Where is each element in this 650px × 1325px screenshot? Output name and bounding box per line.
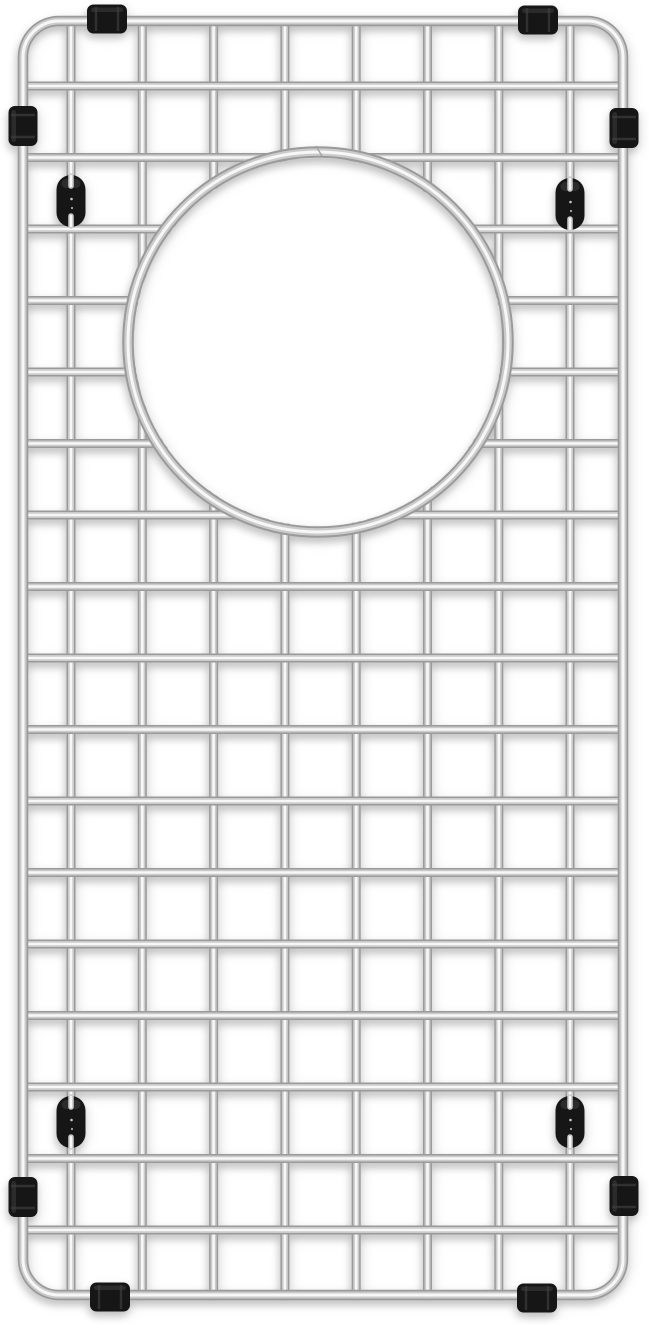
bumper-sheen: [12, 1181, 17, 1213]
foot-speck: [569, 201, 572, 204]
bumper-sheen: [613, 112, 618, 144]
frame-bumper: [9, 1177, 38, 1217]
bumper-sheen: [522, 9, 554, 14]
rubber-foot: [57, 1096, 86, 1148]
horizontal-wires: [23, 86, 623, 1230]
foot-speck: [71, 207, 73, 209]
frame-bumper: [9, 106, 38, 146]
frame-bumper: [518, 6, 558, 35]
foot-speck: [569, 1119, 572, 1122]
drain-ring: [128, 146, 508, 532]
foot-speck: [570, 1128, 572, 1130]
bumper-sheen: [521, 1287, 553, 1292]
frame-bumper: [610, 1176, 639, 1216]
rubber-foot: [57, 175, 86, 227]
frame-bumper: [90, 1283, 130, 1312]
frame-bumper: [87, 5, 127, 34]
sink-grid-image: [0, 0, 650, 1325]
frame-bumper: [517, 1284, 557, 1313]
foot-speck: [71, 1128, 73, 1130]
rubber-foot: [556, 1096, 585, 1148]
frame-bumper: [610, 108, 639, 148]
rubber-foot: [556, 178, 585, 230]
foot-speck: [70, 1119, 73, 1122]
bumper-sheen: [613, 1180, 618, 1212]
product-photo: [0, 0, 650, 1325]
bumper-sheen: [91, 8, 123, 13]
foot-speck: [570, 210, 572, 212]
bumper-sheen: [12, 110, 17, 142]
grid-wires: [23, 21, 623, 1295]
bumper-sheen: [94, 1286, 126, 1291]
foot-speck: [70, 198, 73, 201]
